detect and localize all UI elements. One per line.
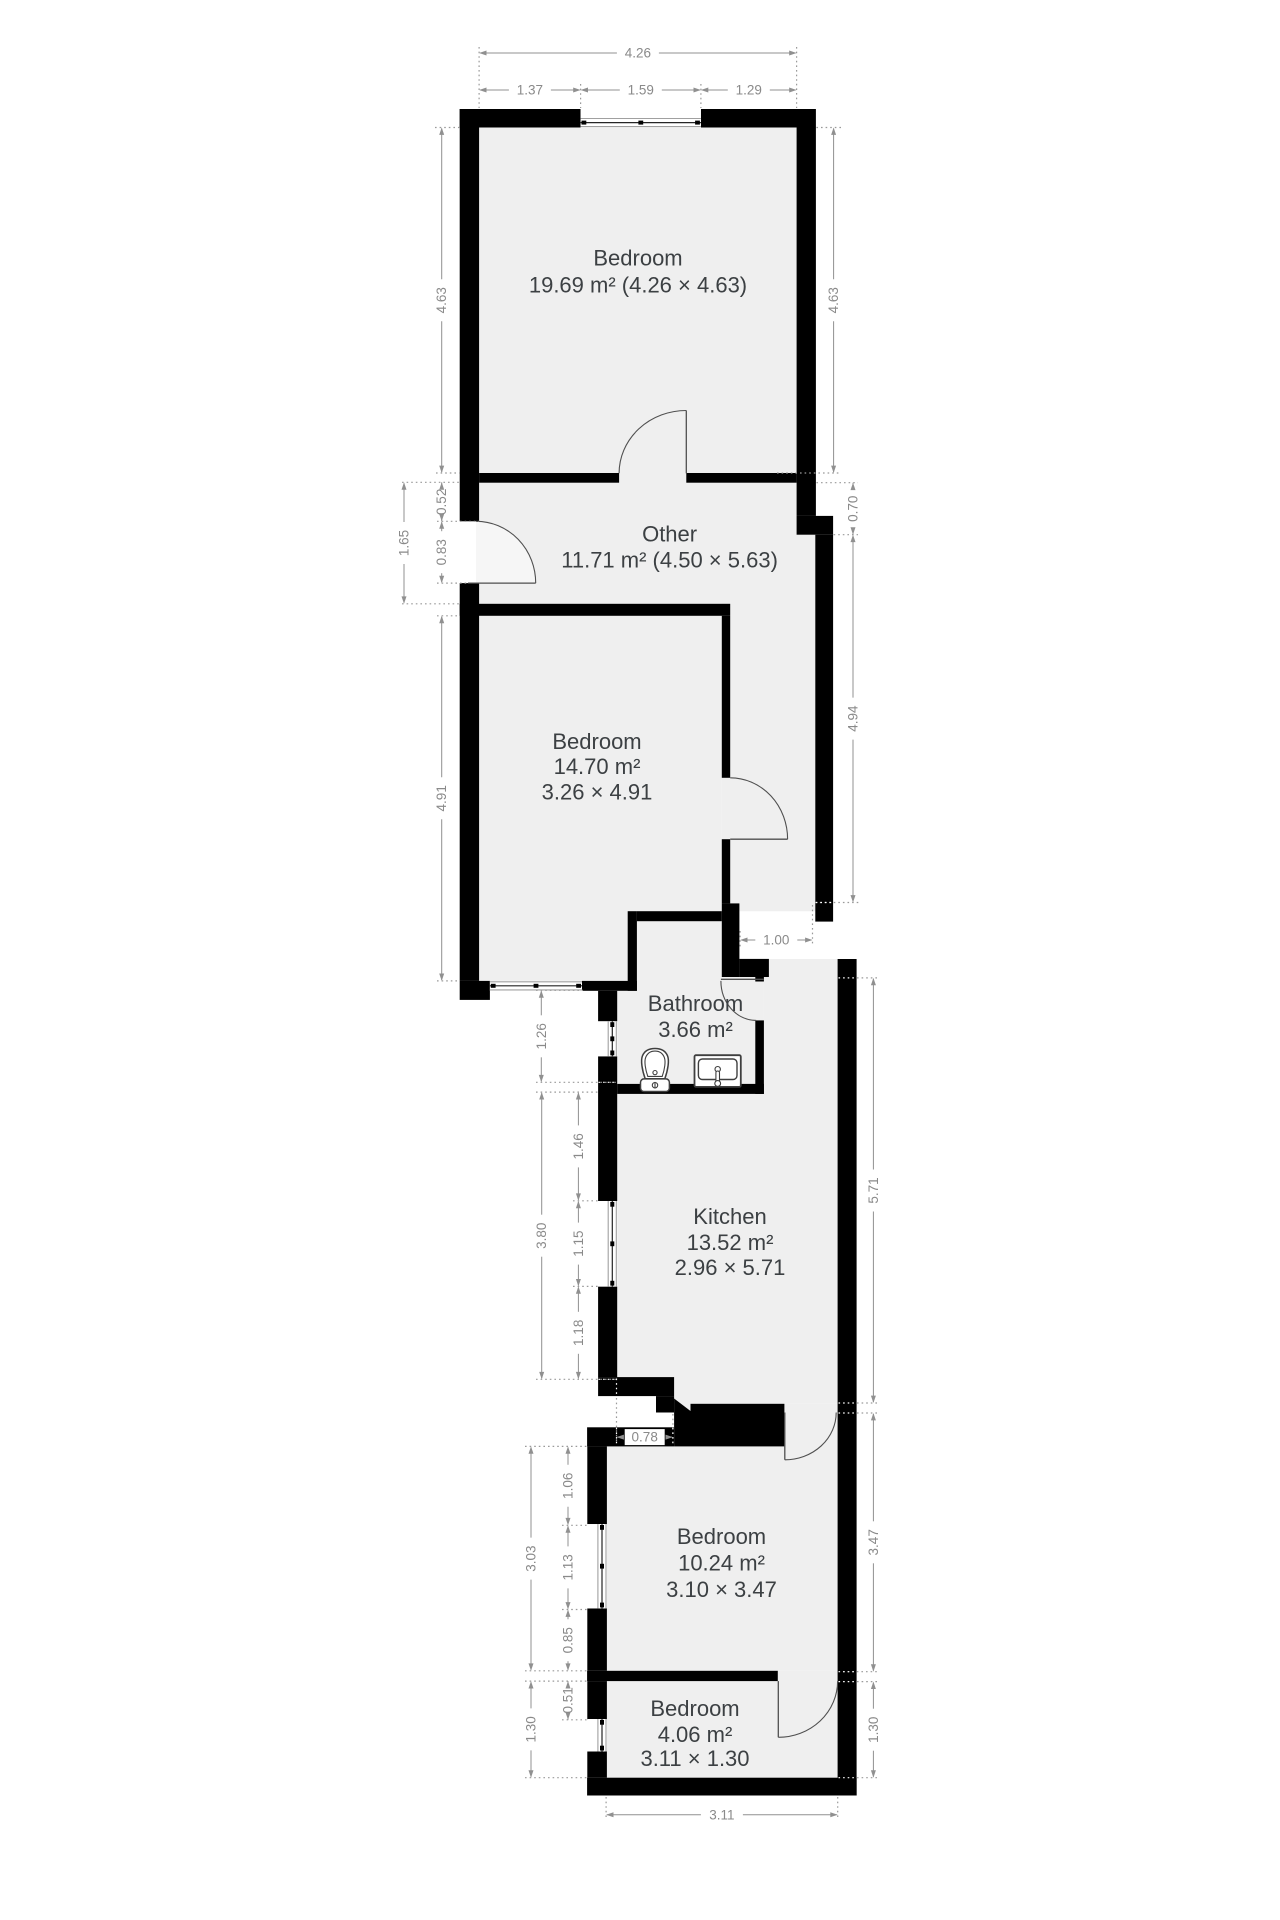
svg-text:4.06 m²: 4.06 m² [658, 1722, 733, 1747]
svg-text:1.30: 1.30 [866, 1717, 881, 1743]
svg-text:3.11 × 1.30: 3.11 × 1.30 [640, 1746, 749, 1771]
svg-text:Bedroom: Bedroom [552, 729, 641, 754]
svg-text:0.78: 0.78 [632, 1430, 658, 1445]
svg-text:3.26 × 4.91: 3.26 × 4.91 [542, 780, 653, 805]
svg-text:0.51: 0.51 [561, 1687, 576, 1713]
svg-text:Bedroom: Bedroom [677, 1524, 766, 1549]
svg-text:3.80: 3.80 [534, 1223, 549, 1249]
svg-text:1.06: 1.06 [561, 1473, 576, 1499]
svg-text:4.94: 4.94 [846, 705, 861, 732]
svg-text:10.24 m²: 10.24 m² [678, 1551, 765, 1576]
svg-text:1.37: 1.37 [517, 83, 543, 98]
svg-text:1.18: 1.18 [571, 1320, 586, 1346]
svg-text:11.71 m² (4.50 × 5.63): 11.71 m² (4.50 × 5.63) [561, 548, 778, 573]
svg-text:1.15: 1.15 [571, 1230, 586, 1256]
svg-text:Kitchen: Kitchen [693, 1204, 766, 1229]
svg-text:1.26: 1.26 [534, 1023, 549, 1049]
svg-text:14.70 m²: 14.70 m² [554, 754, 641, 779]
svg-text:1.59: 1.59 [628, 83, 654, 98]
svg-text:4.26: 4.26 [625, 46, 651, 61]
svg-text:1.13: 1.13 [561, 1554, 576, 1580]
svg-text:3.10 × 3.47: 3.10 × 3.47 [666, 1577, 777, 1602]
svg-text:0.70: 0.70 [846, 496, 861, 522]
svg-text:4.63: 4.63 [826, 287, 841, 313]
svg-text:1.29: 1.29 [736, 83, 762, 98]
svg-text:2.96 × 5.71: 2.96 × 5.71 [675, 1255, 786, 1280]
svg-text:13.52 m²: 13.52 m² [687, 1230, 774, 1255]
svg-text:Bedroom: Bedroom [593, 246, 682, 271]
svg-text:0.83: 0.83 [434, 539, 449, 565]
svg-text:0.52: 0.52 [434, 489, 449, 515]
svg-text:1.00: 1.00 [763, 933, 789, 948]
svg-text:5.71: 5.71 [866, 1177, 881, 1203]
svg-text:3.47: 3.47 [866, 1529, 881, 1555]
svg-text:Bathroom: Bathroom [648, 991, 743, 1016]
svg-text:1.46: 1.46 [571, 1133, 586, 1159]
svg-text:19.69 m² (4.26 × 4.63): 19.69 m² (4.26 × 4.63) [529, 273, 747, 298]
svg-text:3.11: 3.11 [709, 1807, 734, 1822]
svg-text:0.85: 0.85 [561, 1627, 576, 1653]
svg-text:1.65: 1.65 [397, 530, 412, 556]
svg-text:Bedroom: Bedroom [650, 1696, 739, 1721]
svg-text:1.30: 1.30 [524, 1716, 539, 1742]
svg-text:4.91: 4.91 [434, 785, 449, 811]
svg-text:3.66 m²: 3.66 m² [658, 1017, 733, 1042]
svg-text:4.63: 4.63 [434, 287, 449, 313]
svg-text:3.03: 3.03 [524, 1545, 539, 1571]
svg-text:Other: Other [642, 522, 697, 547]
